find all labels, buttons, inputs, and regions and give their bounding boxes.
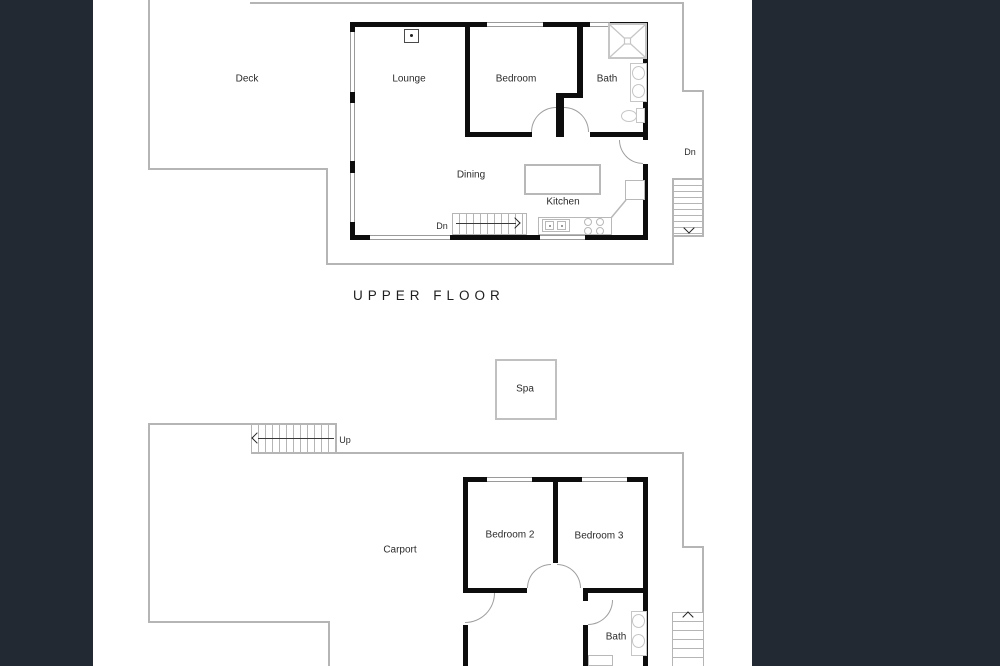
lower-window-top-2 — [582, 477, 627, 482]
lower-window-top-1 — [487, 477, 532, 482]
side-outline-step — [682, 90, 704, 92]
room-label-dining: Dining — [457, 170, 485, 181]
upper-floor-title: UPPER FLOOR — [353, 288, 505, 303]
upper-window-top-1 — [487, 22, 543, 27]
bedrooms-bottom-wall-2 — [583, 588, 648, 593]
upper-wall-bottom-1 — [350, 235, 370, 240]
upper-wall-left-1 — [350, 22, 355, 32]
sink-basin-icon — [632, 66, 645, 80]
stove-burner-icon — [596, 218, 604, 226]
upper-wall-bottom-2 — [450, 235, 540, 240]
toilet-tank-icon — [636, 108, 645, 123]
door-stub-wall — [556, 95, 564, 137]
sink-basin-icon — [632, 614, 645, 628]
lower-shower-icon — [588, 655, 613, 666]
lower-right-outline-v1 — [682, 452, 684, 548]
stove-burner-icon — [596, 227, 604, 235]
upper-window-top-2 — [590, 22, 610, 27]
stairs-up-label: Up — [339, 435, 351, 445]
stairs-down-label: Dn — [684, 147, 696, 157]
side-outline-v2 — [702, 90, 704, 180]
upper-wall-right-2 — [643, 164, 648, 240]
sink-dot-icon — [561, 225, 563, 227]
lower-wall-left-1 — [463, 477, 468, 593]
upper-wall-left-3 — [350, 161, 355, 173]
stove-burner-icon — [584, 218, 592, 226]
lounge-bedroom-wall — [465, 22, 470, 137]
toilet-bowl-icon — [621, 110, 637, 122]
room-label-bedroom: Bedroom — [496, 74, 537, 85]
carport-outline-bottom — [148, 621, 330, 623]
room-label-bedroom3: Bedroom 3 — [575, 531, 624, 542]
stairs-up-direction-line — [258, 438, 334, 439]
roof-outline-top — [250, 2, 684, 4]
stove-burner-icon — [584, 227, 592, 235]
shower-x-icon — [608, 23, 647, 59]
lower-wall-left-2 — [463, 625, 468, 666]
upper-wall-bottom-3 — [585, 235, 648, 240]
room-label-lower-bath: Bath — [606, 632, 627, 643]
upper-window-left-2 — [350, 103, 355, 161]
room-label-bath: Bath — [597, 74, 618, 85]
deck-outline-bottom — [148, 168, 328, 170]
balcony-outline-right — [672, 237, 674, 265]
upper-window-bottom-2 — [540, 235, 585, 240]
upper-wall-left-2 — [350, 92, 355, 103]
stairs-direction-line — [456, 223, 516, 224]
sink-dot-icon — [549, 225, 551, 227]
upper-window-left-1 — [350, 32, 355, 92]
sink-basin-icon — [632, 634, 645, 648]
room-label-bedroom2: Bedroom 2 — [486, 530, 535, 541]
carport-outline-left — [148, 423, 150, 623]
sink-basin-icon — [632, 84, 645, 98]
deck-outline-step — [326, 168, 328, 265]
side-outline-v1 — [682, 2, 684, 92]
bedroom-divider-wall — [553, 482, 558, 563]
room-label-spa: Spa — [516, 384, 534, 395]
upper-window-left-3 — [350, 173, 355, 222]
floor-plan-canvas: Dn — [0, 0, 1000, 666]
interior-stairs-label: Dn — [436, 221, 448, 231]
room-label-lounge: Lounge — [392, 74, 425, 85]
room-label-carport: Carport — [383, 545, 416, 556]
pantry-icon — [625, 180, 645, 200]
bath-bottom-wall — [590, 132, 648, 137]
carport-outline-right — [328, 621, 330, 666]
bedroom-bottom-wall — [465, 132, 532, 137]
deck-outline-left — [148, 0, 150, 170]
dining-table — [524, 164, 601, 195]
room-label-deck: Deck — [236, 74, 259, 85]
balcony-outline-bottom — [326, 263, 674, 265]
plan-paper — [93, 0, 752, 666]
light-dot-icon — [410, 34, 413, 37]
bath-jog-wall — [556, 93, 583, 98]
lower-right-outline-step — [682, 546, 704, 548]
upper-window-bottom-1 — [370, 235, 450, 240]
room-label-kitchen: Kitchen — [546, 197, 579, 208]
bedroom-bath-wall — [577, 22, 583, 98]
